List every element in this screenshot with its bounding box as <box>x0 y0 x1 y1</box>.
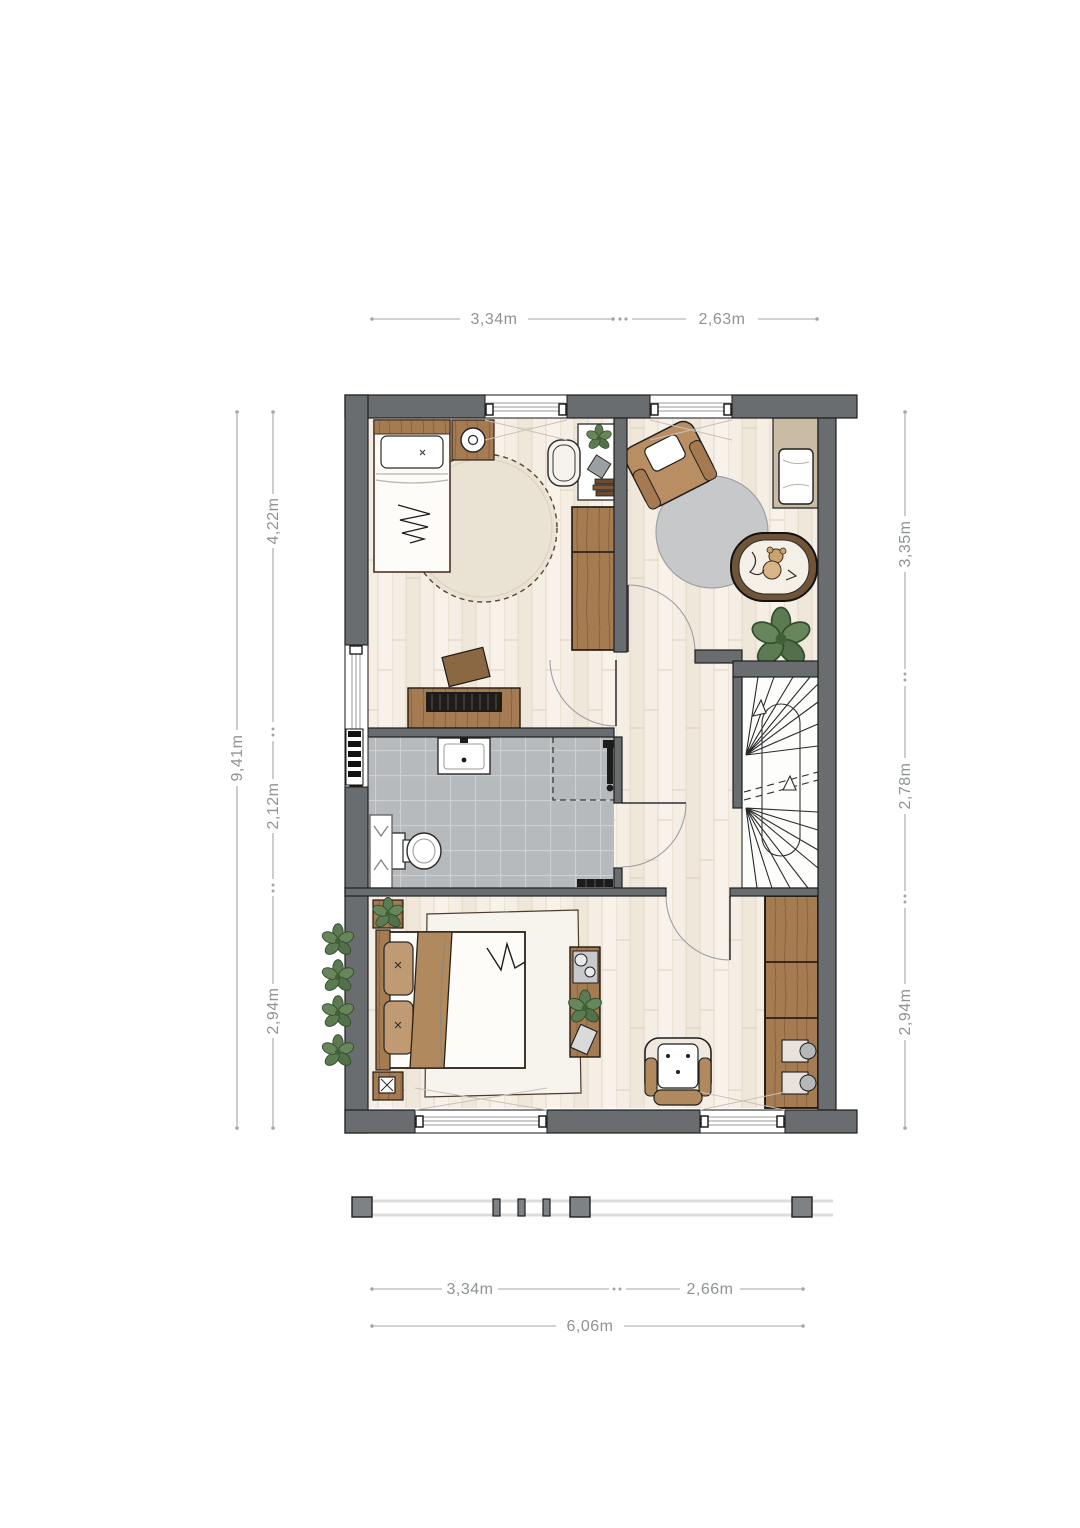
dressing-table <box>567 947 604 1057</box>
dim-label-right-3: 2,94m <box>897 989 914 1036</box>
wardrobe-master <box>765 896 818 1108</box>
wall-left-upper <box>345 395 368 645</box>
dim-left-segments: 4,22m 2,12m 2,94m <box>265 410 282 1130</box>
dim-right-segments: 3,35m 2,78m 2,94m <box>897 410 914 1130</box>
wall-top-right <box>732 395 857 418</box>
dim-label-bottom-left: 3,34m <box>447 1281 494 1298</box>
post-icon <box>570 1197 590 1217</box>
facade-strip <box>352 1197 833 1217</box>
dim-label-right-2: 2,78m <box>897 763 914 810</box>
dim-label-top-right: 2,63m <box>699 311 746 328</box>
pillow-icon <box>384 1001 413 1054</box>
pillow-icon <box>384 942 413 995</box>
dim-label-left-3: 2,94m <box>265 988 282 1035</box>
radiator-icon <box>346 729 363 785</box>
wall-bottom-mid <box>547 1110 700 1133</box>
nightstand-master-top <box>371 898 405 930</box>
dim-label-right-1: 3,35m <box>897 521 914 568</box>
double-bed <box>376 930 525 1070</box>
wall-bathroom-right-upper <box>614 737 622 803</box>
wall-master-top-right <box>730 888 818 896</box>
dim-top: 3,34m 2,63m <box>370 311 819 328</box>
wall-bathroom-right-lower <box>614 868 622 888</box>
dim-bottom: 3,34m 2,66m <box>370 1281 805 1298</box>
post-icon <box>518 1199 525 1216</box>
changing-pad-icon <box>779 449 813 504</box>
wall-bathroom-top <box>368 728 614 737</box>
wall-stair-top <box>733 661 818 677</box>
wall-top-mid <box>567 395 650 418</box>
floorplan-drawing: 3,34m 2,63m 9,41m 4,22m 2,12m 2,94m <box>0 0 1080 1528</box>
dim-label-bottom-right: 2,66m <box>687 1281 734 1298</box>
wall-bottom-left <box>345 1110 415 1133</box>
lamp-icon <box>461 428 485 452</box>
post-icon <box>792 1197 812 1217</box>
staircase <box>742 663 818 888</box>
dim-label-left-total: 9,41m <box>229 735 246 782</box>
crib <box>731 533 817 601</box>
footrest-icon <box>654 1090 702 1105</box>
stool-icon <box>782 1040 816 1062</box>
books-icon <box>593 479 616 496</box>
wall-left-lower <box>345 787 368 1133</box>
wall-stair-left <box>733 677 742 808</box>
bath-mat <box>577 879 613 887</box>
desk-chair-bedroom1 <box>548 440 580 486</box>
towel-radiator <box>370 815 392 888</box>
nightstand-bedroom1 <box>452 420 494 460</box>
dim-label-left-1: 4,22m <box>265 498 282 545</box>
sink <box>438 735 490 774</box>
window-left <box>345 645 368 787</box>
post-icon <box>543 1199 550 1216</box>
desk-bedroom1 <box>578 424 618 500</box>
post-icon <box>352 1197 372 1217</box>
dim-bottom-total: 6,06m <box>370 1318 805 1335</box>
wall-right <box>818 418 836 1110</box>
shower-drain-icon <box>607 785 614 792</box>
wall-bottom-right <box>785 1110 857 1133</box>
dim-label-top-left: 3,34m <box>471 311 518 328</box>
wardrobe-bedroom1 <box>572 507 618 650</box>
nightstand-master-bottom <box>373 1072 403 1100</box>
stool-icon <box>782 1072 816 1094</box>
dim-label-bottom-total: 6,06m <box>567 1318 614 1335</box>
folded-blanket <box>410 932 452 1068</box>
dim-label-left-2: 2,12m <box>265 783 282 830</box>
post-icon <box>493 1199 500 1216</box>
single-bed <box>374 420 450 572</box>
wall-master-top-left <box>345 888 666 896</box>
changing-table <box>773 418 818 508</box>
armchair-master <box>645 1038 711 1105</box>
toilet <box>390 833 441 869</box>
wall-room-divider <box>614 418 627 652</box>
floorplan-page: 3,34m 2,63m 9,41m 4,22m 2,12m 2,94m <box>0 0 1080 1528</box>
dim-left-total: 9,41m <box>229 410 246 1130</box>
